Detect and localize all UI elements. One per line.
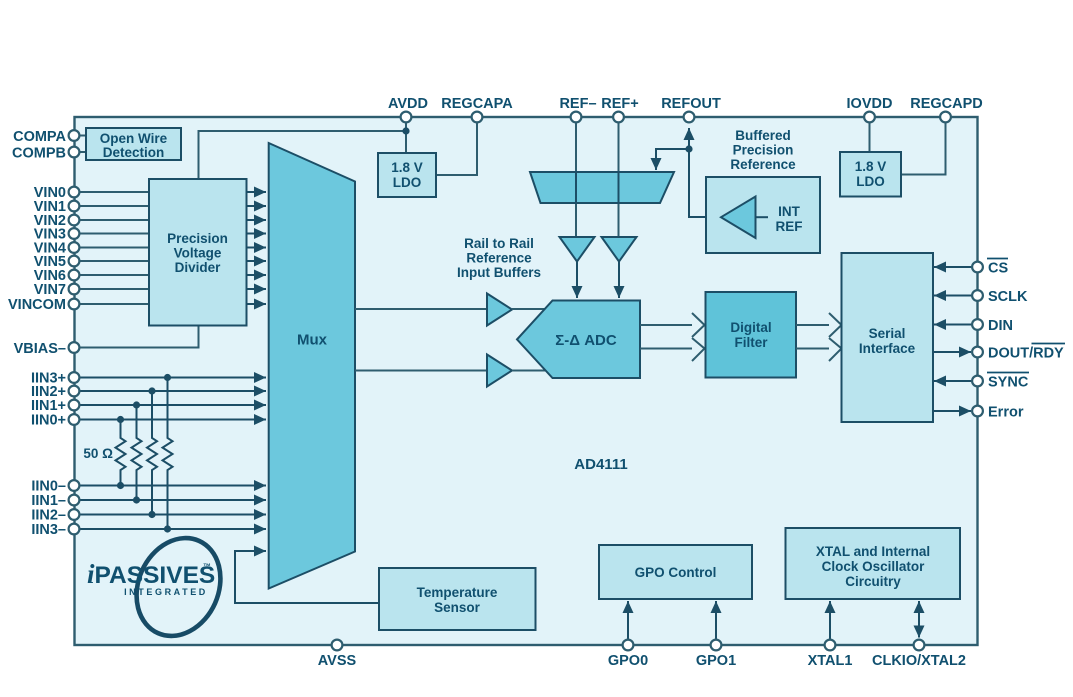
svg-text:COMPA: COMPA <box>13 129 66 145</box>
svg-text:Error: Error <box>988 405 1024 421</box>
svg-text:Reference: Reference <box>730 157 796 172</box>
svg-text:CS: CS <box>988 261 1008 277</box>
svg-text:Divider: Divider <box>175 260 222 275</box>
svg-text:REGCAPA: REGCAPA <box>441 96 513 112</box>
svg-text:DIN: DIN <box>988 318 1013 334</box>
svg-text:IOVDD: IOVDD <box>847 96 893 112</box>
svg-text:INT: INT <box>778 204 801 219</box>
svg-text:LDO: LDO <box>856 174 885 189</box>
svg-text:Reference: Reference <box>466 251 532 266</box>
svg-text:1.8 V: 1.8 V <box>391 160 423 175</box>
svg-text:SYNC: SYNC <box>988 375 1029 391</box>
svg-text:LDO: LDO <box>393 175 422 190</box>
svg-text:COMPB: COMPB <box>12 146 66 162</box>
svg-text:Circuitry: Circuitry <box>845 574 901 589</box>
svg-text:INTEGRATED: INTEGRATED <box>124 587 208 597</box>
svg-text:Open Wire: Open Wire <box>100 131 168 146</box>
svg-text:AVDD: AVDD <box>388 96 428 112</box>
svg-text:Input Buffers: Input Buffers <box>457 265 541 280</box>
svg-text:Mux: Mux <box>297 332 328 349</box>
svg-text:Precision: Precision <box>733 143 794 158</box>
svg-text:1.8 V: 1.8 V <box>855 159 887 174</box>
svg-text:™: ™ <box>203 562 211 571</box>
svg-text:Interface: Interface <box>859 341 916 356</box>
svg-text:50 Ω: 50 Ω <box>83 446 113 461</box>
svg-text:XTAL and Internal: XTAL and Internal <box>816 544 930 559</box>
svg-text:Clock Oscillator: Clock Oscillator <box>822 559 926 574</box>
svg-text:Digital: Digital <box>730 320 771 335</box>
svg-text:VINCOM: VINCOM <box>8 297 66 313</box>
svg-text:iPASSIVES: iPASSIVES <box>87 559 215 589</box>
svg-text:VBIAS–: VBIAS– <box>14 341 66 357</box>
svg-text:GPO1: GPO1 <box>696 653 736 669</box>
svg-text:Σ-Δ ADC: Σ-Δ ADC <box>555 332 617 349</box>
svg-text:VIN7: VIN7 <box>34 282 66 298</box>
svg-text:AVSS: AVSS <box>318 653 357 669</box>
svg-text:Voltage: Voltage <box>174 246 222 261</box>
svg-text:GPO Control: GPO Control <box>635 565 717 580</box>
svg-text:REF–: REF– <box>559 96 596 112</box>
svg-text:Sensor: Sensor <box>434 600 481 615</box>
svg-text:Precision: Precision <box>167 231 228 246</box>
svg-text:IIN3–: IIN3– <box>31 522 66 538</box>
svg-text:Filter: Filter <box>734 335 768 350</box>
svg-text:Serial: Serial <box>869 326 906 341</box>
svg-text:SCLK: SCLK <box>988 289 1028 305</box>
svg-text:REF+: REF+ <box>601 96 638 112</box>
svg-text:AD4111: AD4111 <box>574 456 627 473</box>
svg-text:REGCAPD: REGCAPD <box>910 96 983 112</box>
svg-text:IIN0+: IIN0+ <box>31 413 66 429</box>
svg-text:CLKIO/XTAL2: CLKIO/XTAL2 <box>872 653 966 669</box>
svg-text:Temperature: Temperature <box>417 585 498 600</box>
svg-text:GPO0: GPO0 <box>608 653 648 669</box>
svg-text:Rail to Rail: Rail to Rail <box>464 236 534 251</box>
svg-text:XTAL1: XTAL1 <box>808 653 853 669</box>
svg-text:REF: REF <box>776 219 803 234</box>
svg-text:Detection: Detection <box>103 145 165 160</box>
svg-text:DOUT/RDY: DOUT/RDY <box>988 346 1064 362</box>
svg-text:Buffered: Buffered <box>735 128 791 143</box>
svg-text:REFOUT: REFOUT <box>661 96 721 112</box>
